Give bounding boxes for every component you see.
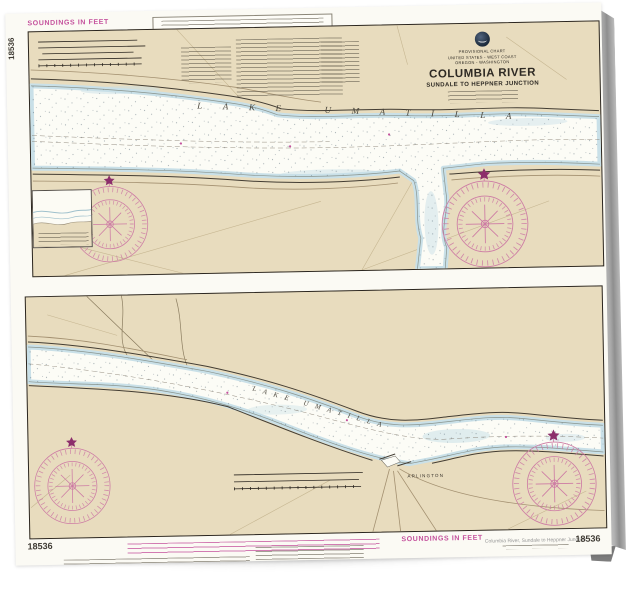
soundings-note-bottom: SOUNDINGS IN FEET xyxy=(401,535,482,544)
product-photo: SOUNDINGS IN FEET 18536 xyxy=(0,0,637,590)
chart-number-bottom-right: 18536 xyxy=(575,533,600,543)
soundings-note-top: SOUNDINGS IN FEET xyxy=(27,19,108,28)
chart-panel-bottom: LAKE UMATILLA ARLINGTON xyxy=(25,285,608,539)
noaa-logo-icon xyxy=(474,31,489,46)
bottom-panel-map: LAKE UMATILLA ARLINGTON xyxy=(26,286,607,538)
caption-subline xyxy=(503,544,569,549)
chart-title-block: PROVISIONAL CHART UNITED STATES - WEST C… xyxy=(406,30,559,103)
canvas-print: SOUNDINGS IN FEET 18536 xyxy=(5,2,611,565)
chart-number-top-left: 18536 xyxy=(7,38,16,60)
chart-panel-top: LAKE UMATILLA PROVISIONAL CHART UNITED S… xyxy=(28,20,605,277)
producer-credit-lines xyxy=(256,545,364,560)
note-block-right xyxy=(321,41,360,84)
town-label-arlington: ARLINGTON xyxy=(407,473,444,479)
inset-note-lines xyxy=(39,232,89,245)
note-block-left xyxy=(181,46,232,83)
inset-diagram xyxy=(32,189,93,248)
chart-number-bottom-left: 18536 xyxy=(27,541,52,551)
projection-note-lines xyxy=(448,89,518,102)
